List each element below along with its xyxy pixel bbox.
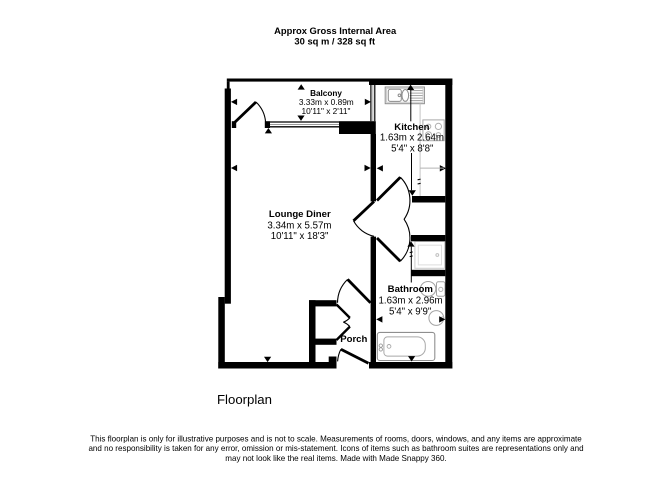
svg-text:1.63m x 2.96m: 1.63m x 2.96m	[379, 296, 443, 307]
svg-text:5'4" x 8'8": 5'4" x 8'8"	[391, 143, 434, 154]
svg-text:30 sq m / 328 sq ft: 30 sq m / 328 sq ft	[294, 36, 375, 47]
svg-text:3.34m x 5.57m: 3.34m x 5.57m	[267, 221, 331, 232]
svg-text:Kitchen: Kitchen	[394, 122, 429, 133]
svg-text:and no responsibility is taken: and no responsibility is taken for any e…	[88, 444, 583, 453]
svg-text:Lounge Diner: Lounge Diner	[269, 209, 331, 220]
svg-text:10'11" x 18'3": 10'11" x 18'3"	[271, 231, 329, 242]
svg-text:may not look like the real ite: may not look like the real items. Made w…	[225, 454, 446, 463]
svg-text:10'11" x 2'11": 10'11" x 2'11"	[302, 106, 351, 116]
svg-text:Approx Gross Internal Area: Approx Gross Internal Area	[274, 25, 397, 36]
svg-text:This floorplan is only for ill: This floorplan is only for illustrative …	[90, 434, 582, 443]
svg-text:Porch: Porch	[340, 334, 367, 345]
svg-text:Floorplan: Floorplan	[217, 392, 272, 407]
svg-text:5'4" x 9'9": 5'4" x 9'9"	[389, 307, 432, 318]
svg-text:1.63m x 2.64m: 1.63m x 2.64m	[380, 133, 444, 144]
svg-text:Bathroom: Bathroom	[388, 284, 433, 295]
